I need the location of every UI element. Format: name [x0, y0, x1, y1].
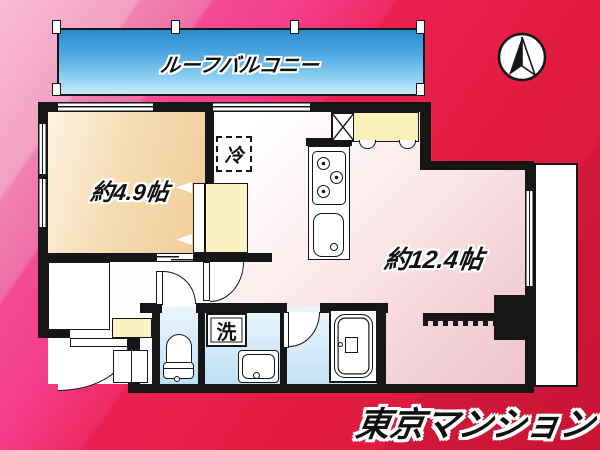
west-room-label: 約4.9帖	[48, 175, 212, 205]
wall-toilet-left	[152, 303, 160, 393]
stove	[312, 151, 346, 205]
stove-burner	[330, 171, 343, 184]
washer-label: 洗	[217, 316, 237, 345]
balcony-post	[171, 20, 180, 34]
closet-yellow	[205, 183, 248, 253]
balcony-post	[290, 20, 299, 34]
balcony-post	[416, 83, 425, 96]
bathtub-faucet-panel	[345, 337, 358, 353]
stove-burner	[317, 157, 330, 170]
ldk-door-leaf	[203, 262, 210, 301]
kitchen-cabinet	[353, 112, 419, 142]
wall-closet-bottom	[196, 253, 272, 262]
wall-wet-top-mid	[196, 303, 287, 313]
window-left-lower	[38, 179, 48, 227]
washbasin-drain	[253, 372, 260, 379]
toilet-knob	[174, 376, 180, 382]
floorplan-canvas: ルーフバルコニー	[0, 0, 600, 450]
washer-box: 洗	[206, 313, 247, 347]
toilet-door-leaf	[156, 271, 163, 305]
refrigerator-label: 冷	[224, 141, 243, 168]
wall-right-upper	[525, 161, 534, 191]
west-room-sliding-door	[157, 253, 193, 262]
wall-bottom	[131, 384, 534, 393]
balcony-post	[52, 83, 61, 96]
partial-wall	[423, 313, 497, 321]
wall-bath-right	[377, 303, 386, 393]
window-left-upper	[38, 124, 48, 174]
window-top-left	[58, 102, 153, 112]
entrance-storage	[112, 318, 152, 338]
wall-block-right	[494, 295, 534, 340]
north-arrow-icon	[496, 31, 548, 83]
partial-wall-hatch	[423, 321, 497, 326]
balcony-post	[52, 20, 61, 34]
wall-top-right-step-v	[420, 102, 431, 166]
stove-burner	[317, 185, 330, 198]
window-top-kitchen	[213, 102, 310, 112]
wall-toilet-right	[198, 303, 205, 393]
side-balcony	[534, 163, 578, 387]
living-room-label: 約12.4帖	[326, 242, 542, 274]
wall-top-right-step-h	[420, 161, 534, 170]
hall-closet	[48, 262, 110, 330]
wall-westroom-right	[205, 111, 214, 183]
shaft-x-box	[331, 112, 355, 142]
roof-balcony-label: ルーフバルコニー	[88, 50, 392, 76]
refrigerator-box: 冷	[216, 136, 252, 172]
brand-logo: 東京マンション	[296, 397, 598, 443]
bathroom-door-leaf	[283, 312, 289, 348]
bathtub-faucet-dot	[338, 342, 343, 347]
shoe-cabinet	[113, 350, 148, 383]
balcony-post	[416, 20, 425, 34]
entrance-door-leaf	[70, 338, 128, 347]
